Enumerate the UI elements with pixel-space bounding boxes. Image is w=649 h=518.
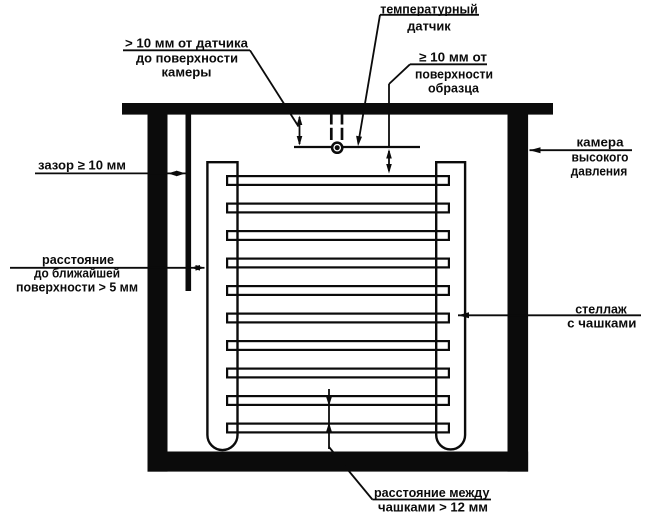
svg-text:поверхности: поверхности: [415, 67, 493, 82]
svg-text:датчик: датчик: [407, 19, 451, 34]
svg-text:стеллаж: стеллаж: [575, 302, 627, 317]
svg-text:образца: образца: [428, 81, 480, 96]
svg-text:расстояние между: расстояние между: [374, 485, 490, 500]
svg-text:с чашками: с чашками: [567, 316, 636, 331]
svg-text:≥ 10 мм от: ≥ 10 мм от: [419, 50, 487, 65]
svg-text:камеры: камеры: [162, 65, 212, 80]
svg-text:до поверхности: до поверхности: [136, 51, 238, 66]
svg-text:зазор ≥ 10 мм: зазор ≥ 10 мм: [38, 158, 126, 173]
svg-text:чашками > 12 мм: чашками > 12 мм: [378, 500, 488, 515]
svg-text:поверхности > 5 мм: поверхности > 5 мм: [16, 280, 138, 295]
svg-text:> 10 мм от датчика: > 10 мм от датчика: [125, 36, 249, 51]
svg-text:высокого: высокого: [572, 150, 629, 165]
svg-text:давления: давления: [571, 164, 628, 179]
svg-text:камера: камера: [577, 135, 625, 150]
